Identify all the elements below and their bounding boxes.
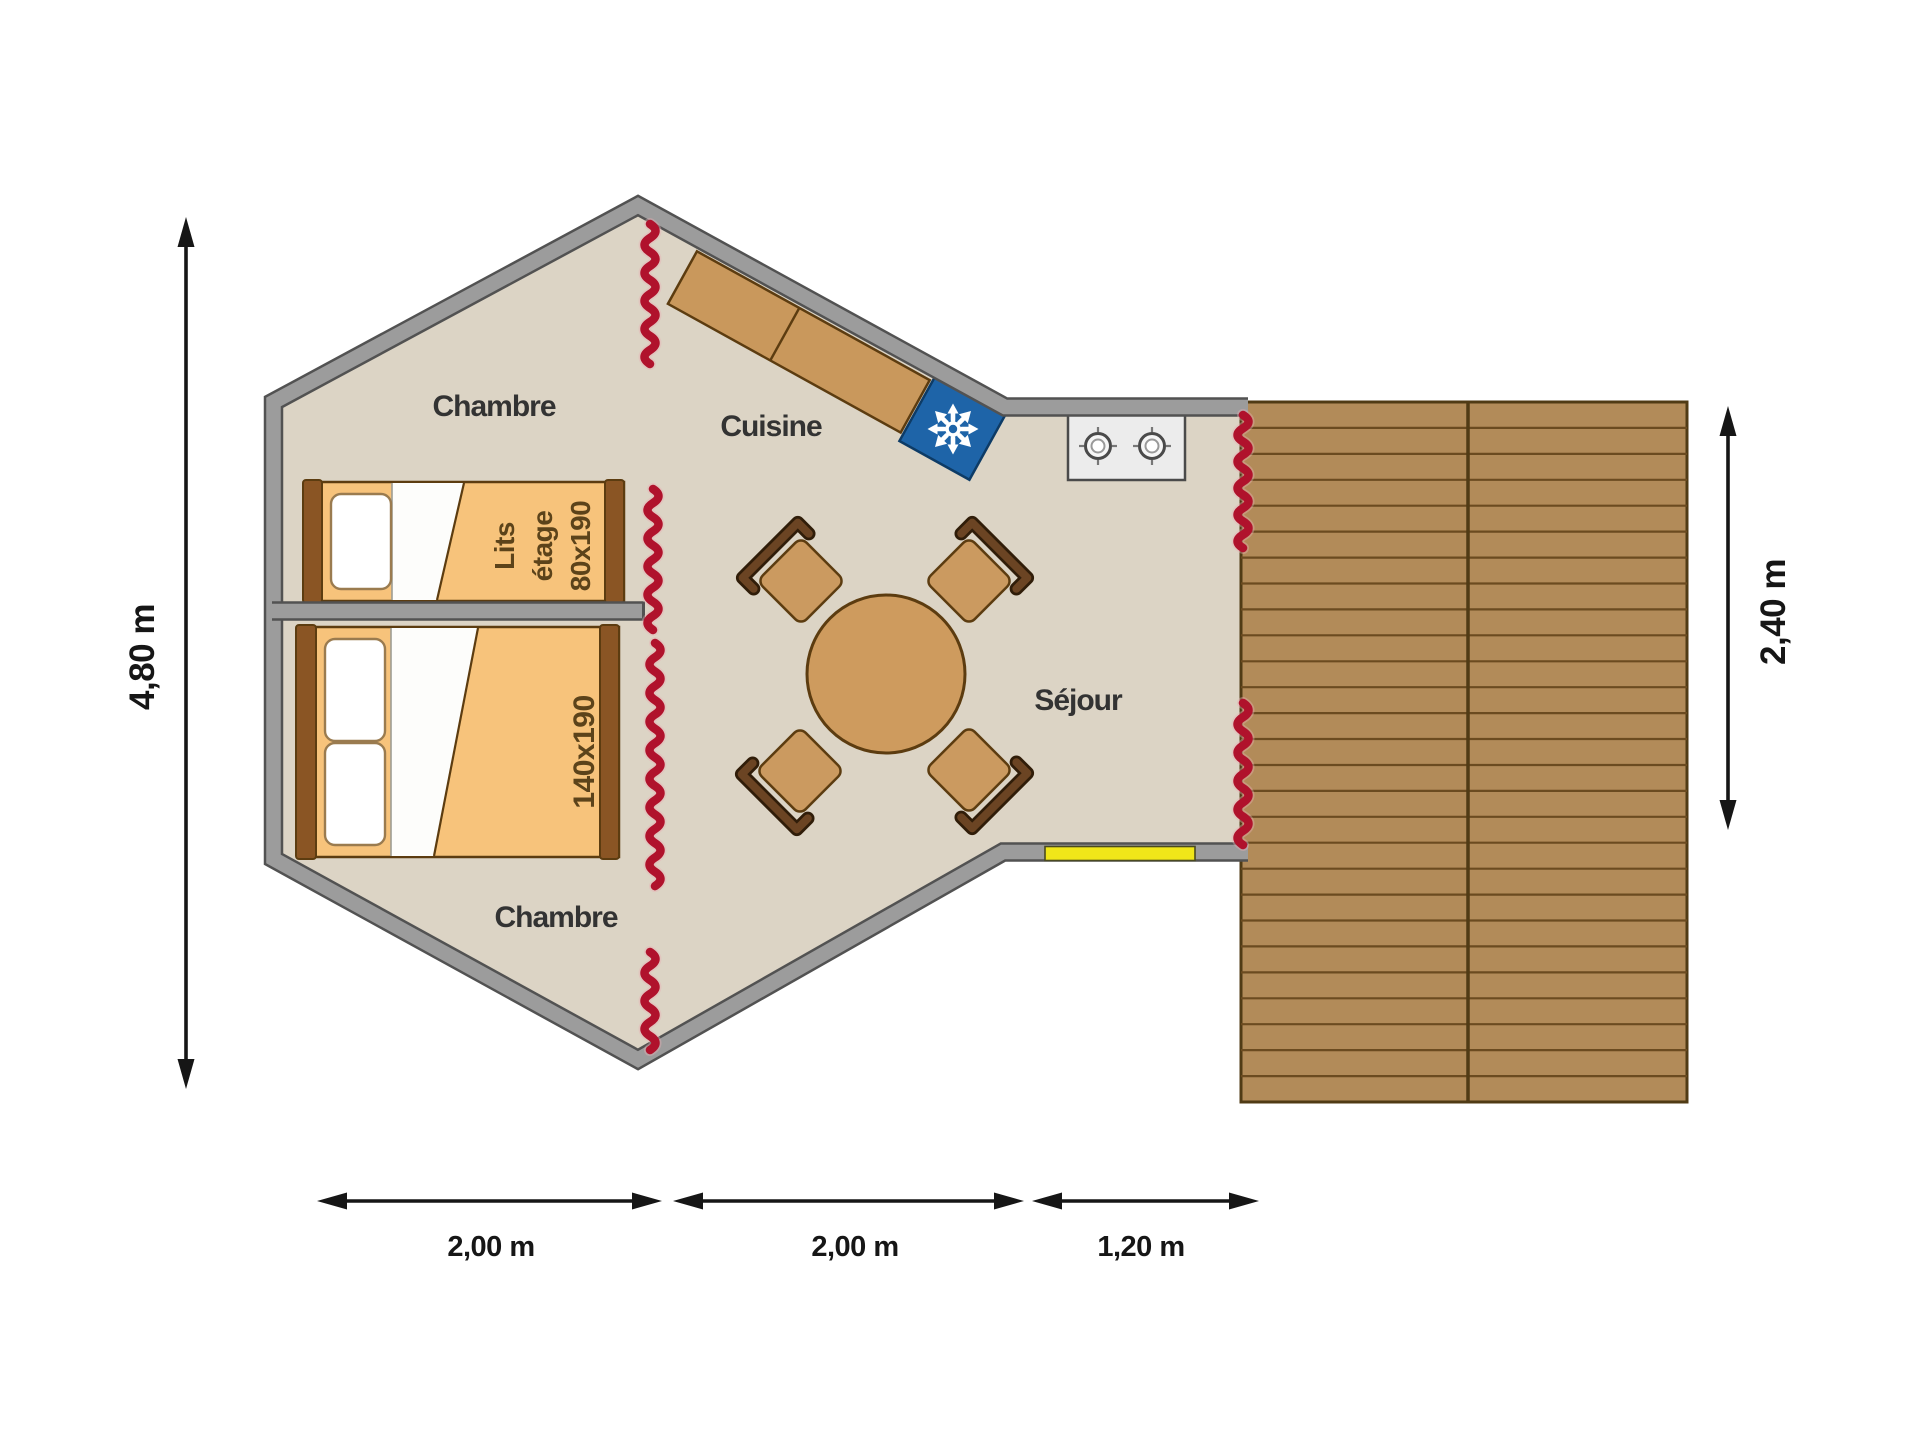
svg-text:Lits: Lits <box>489 522 520 570</box>
svg-text:2,40 m: 2,40 m <box>1754 559 1793 665</box>
svg-text:Chambre: Chambre <box>494 901 617 934</box>
svg-text:2,00 m: 2,00 m <box>447 1231 534 1263</box>
svg-text:Séjour: Séjour <box>1034 684 1123 717</box>
svg-text:1,20 m: 1,20 m <box>1097 1231 1184 1263</box>
svg-text:4,80 m: 4,80 m <box>123 604 162 710</box>
svg-text:Cuisine: Cuisine <box>720 410 822 443</box>
svg-text:140x190: 140x190 <box>568 695 601 808</box>
svg-text:Chambre: Chambre <box>432 390 555 423</box>
svg-text:2,00 m: 2,00 m <box>811 1231 898 1263</box>
svg-text:étage: étage <box>527 511 558 582</box>
svg-text:80x190: 80x190 <box>565 501 596 591</box>
